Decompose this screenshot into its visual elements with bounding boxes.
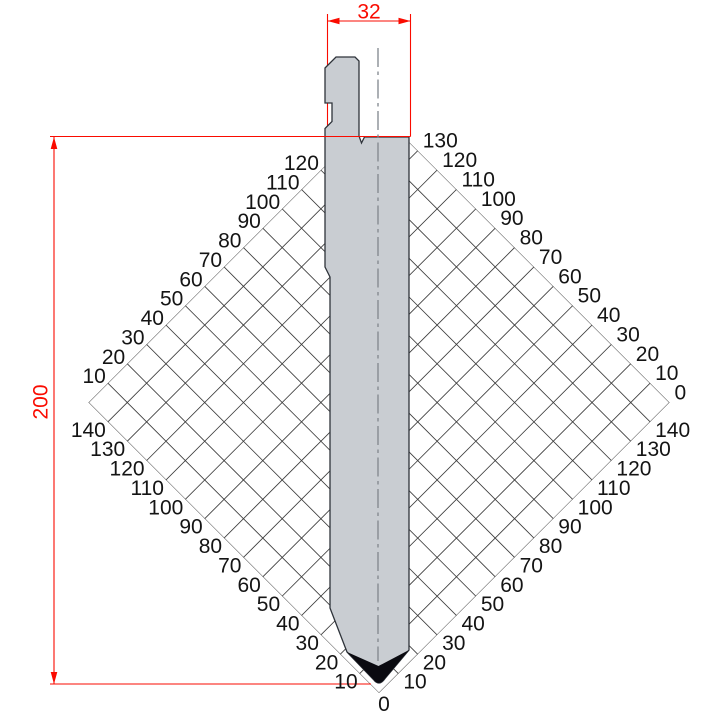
scale-tick-label: 140 <box>71 419 106 442</box>
scale-tick-label: 0 <box>378 693 390 716</box>
technical-drawing-canvas: 32 200 102030405060708090100110120102030… <box>0 0 720 720</box>
scale-tick-label: 120 <box>284 152 319 175</box>
scale-tick-label: 130 <box>423 130 458 153</box>
scale-tick-label: 140 <box>655 419 690 442</box>
width-dimension-value: 32 <box>357 1 380 24</box>
height-dimension-value: 200 <box>30 384 53 419</box>
punch-body <box>325 57 409 683</box>
